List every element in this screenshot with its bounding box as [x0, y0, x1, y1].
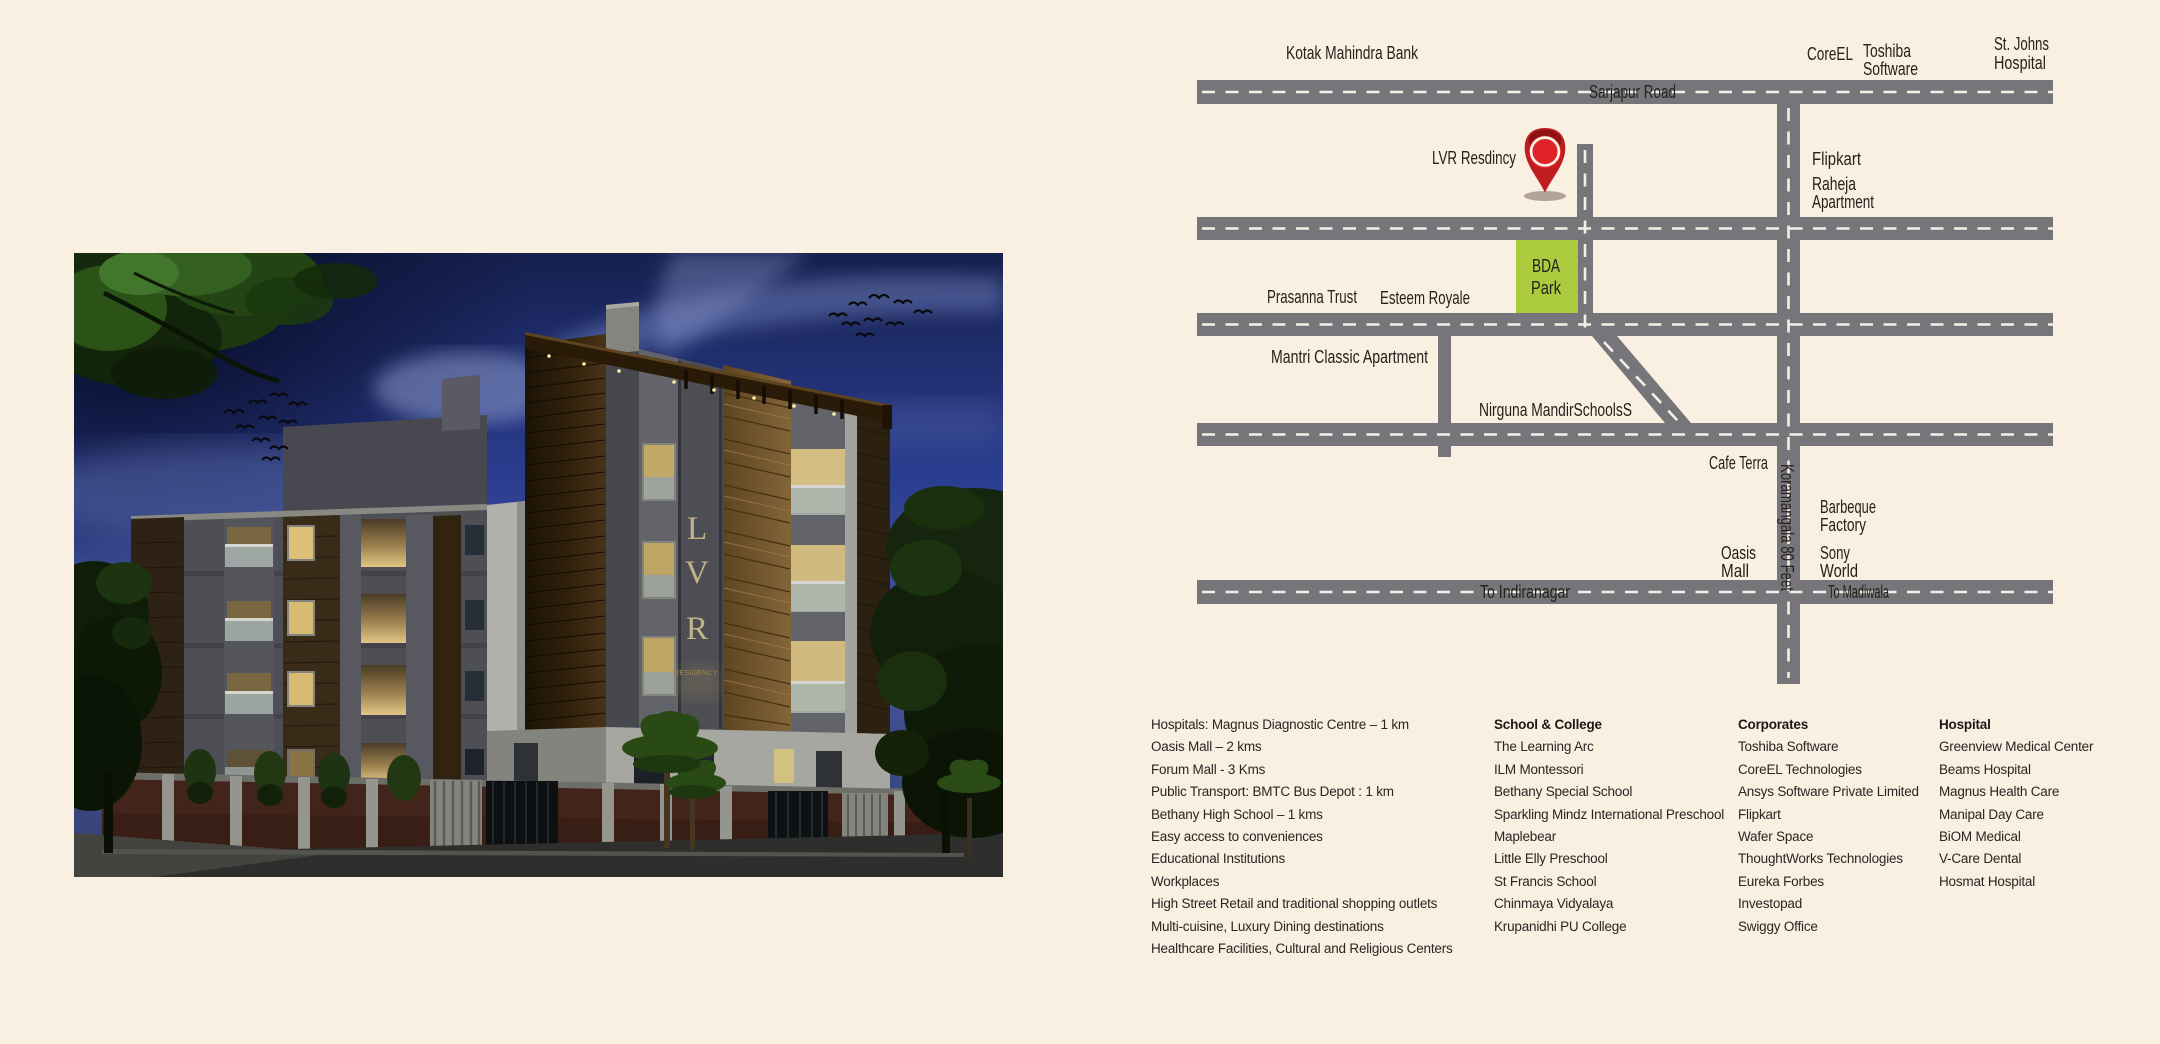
svg-text:Mantri Classic Apartment: Mantri Classic Apartment [1271, 346, 1428, 367]
svg-text:Kotak Mahindra Bank: Kotak Mahindra Bank [1286, 42, 1419, 63]
svg-text:L: L [687, 511, 707, 547]
svg-text:Sarjapur Road: Sarjapur Road [1589, 81, 1676, 102]
svg-text:Hospital: Hospital [1994, 52, 2046, 73]
svg-text:Flipkart: Flipkart [1812, 148, 1861, 169]
svg-text:Mall: Mall [1721, 560, 1749, 581]
svg-text:Software: Software [1863, 58, 1918, 79]
svg-text:Cafe Terra: Cafe Terra [1709, 452, 1768, 473]
svg-text:Park: Park [1531, 278, 1562, 298]
svg-text:Prasanna Trust: Prasanna Trust [1267, 286, 1357, 307]
svg-text:V: V [685, 555, 709, 591]
svg-text:To Indiranagar: To Indiranagar [1480, 581, 1570, 602]
svg-text:LVR Resdincy: LVR Resdincy [1432, 147, 1517, 168]
svg-text:To Madiwala: To Madiwala [1828, 581, 1889, 602]
svg-text:Nirguna MandirSchoolsS: Nirguna MandirSchoolsS [1479, 399, 1632, 420]
svg-text:Esteem Royale: Esteem Royale [1380, 287, 1470, 308]
svg-text:St. Johns: St. Johns [1994, 33, 2049, 54]
svg-text:World: World [1820, 560, 1858, 581]
svg-text:Factory: Factory [1820, 514, 1867, 535]
svg-text:BDA: BDA [1532, 256, 1560, 276]
svg-text:CoreEL: CoreEL [1807, 43, 1853, 64]
svg-text:Koramangala 80 Feet: Koramangala 80 Feet [1777, 464, 1798, 591]
svg-text:Apartment: Apartment [1812, 191, 1874, 212]
svg-text:R: R [686, 611, 708, 647]
